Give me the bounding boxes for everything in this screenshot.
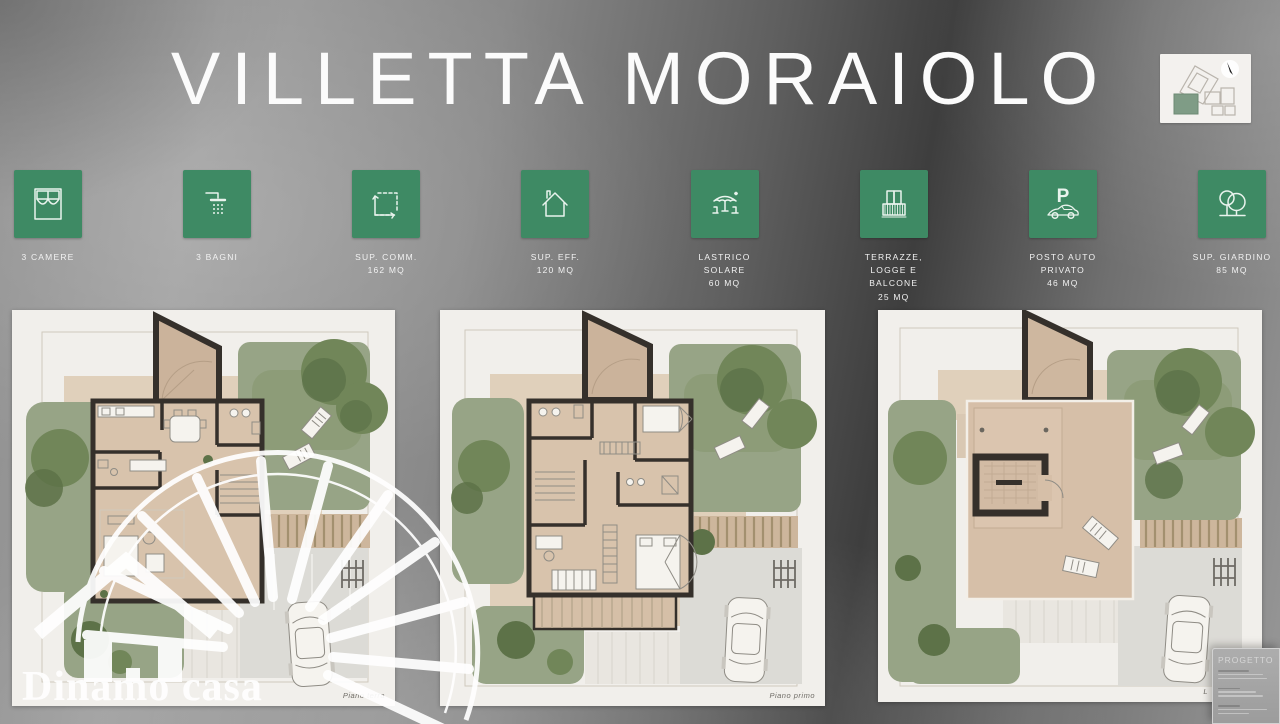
plan-caption: Piano terra [343, 691, 385, 700]
feature-commercial-area: SUP. COMM. 162 MQ [352, 170, 420, 304]
feature-terraces: TERRAZZE, LOGGE E BALCONE 25 MQ [860, 170, 928, 304]
feature-roof-terrace: LASTRICO SOLARE 60 MQ [691, 170, 759, 304]
feature-label: SUP. EFF. 120 MQ [491, 251, 619, 277]
page-title: VILLETTA MORAIOLO [0, 36, 1280, 121]
parking-icon: P [1041, 182, 1085, 226]
feature-row: 3 CAMERE 3 BAGNI [0, 170, 1280, 304]
progetto-panel: PROGETTO [1212, 648, 1280, 724]
first-floor-plan-drawing [440, 310, 825, 706]
shower-icon-box [183, 170, 251, 238]
progetto-text-lines [1218, 670, 1274, 714]
bed-icon [28, 184, 68, 224]
progetto-title: PROGETTO [1218, 655, 1274, 665]
ground-floor-plan: Piano terra [12, 310, 395, 706]
area-dimension-icon-box [352, 170, 420, 238]
ground-floor-plan-drawing [12, 310, 395, 706]
feature-label: 3 BAGNI [153, 251, 281, 264]
feature-bathrooms: 3 BAGNI [183, 170, 251, 304]
house-icon [535, 184, 575, 224]
roof-terrace-plan-drawing [878, 310, 1262, 702]
feature-effective-area: SUP. EFF. 120 MQ [521, 170, 589, 304]
house-icon-box [521, 170, 589, 238]
feature-label: POSTO AUTO PRIVATO 46 MQ [999, 251, 1127, 291]
svg-text:P: P [1057, 186, 1070, 207]
feature-label: SUP. GIARDINO 85 MQ [1168, 251, 1280, 277]
area-dimension-icon [366, 184, 406, 224]
plan-caption: Piano primo [769, 691, 815, 700]
plan-caption: L [1203, 687, 1208, 696]
feature-label: TERRAZZE, LOGGE E BALCONE 25 MQ [830, 251, 958, 304]
feature-parking: P POSTO AUTO PRIVATO 46 MQ [1029, 170, 1097, 304]
balcony-icon-box [860, 170, 928, 238]
site-map-thumbnail [1160, 54, 1251, 123]
feature-bedrooms: 3 CAMERE [14, 170, 82, 304]
first-floor-plan: Piano primo [440, 310, 825, 706]
garden-trees-icon-box [1198, 170, 1266, 238]
feature-label: SUP. COMM. 162 MQ [322, 251, 450, 277]
patio-umbrella-icon-box [691, 170, 759, 238]
feature-label: 3 CAMERE [0, 251, 112, 264]
feature-garden: SUP. GIARDINO 85 MQ [1198, 170, 1266, 304]
slide: VILLETTA MORAIOLO [0, 0, 1280, 724]
parking-icon-box: P [1029, 170, 1097, 238]
bed-icon-box [14, 170, 82, 238]
site-map-icon [1160, 54, 1251, 123]
shower-icon [197, 184, 237, 224]
garden-trees-icon [1212, 184, 1252, 224]
feature-label: LASTRICO SOLARE 60 MQ [661, 251, 789, 291]
roof-terrace-plan: L [878, 310, 1262, 702]
patio-umbrella-icon [705, 184, 745, 224]
balcony-icon [874, 184, 914, 224]
